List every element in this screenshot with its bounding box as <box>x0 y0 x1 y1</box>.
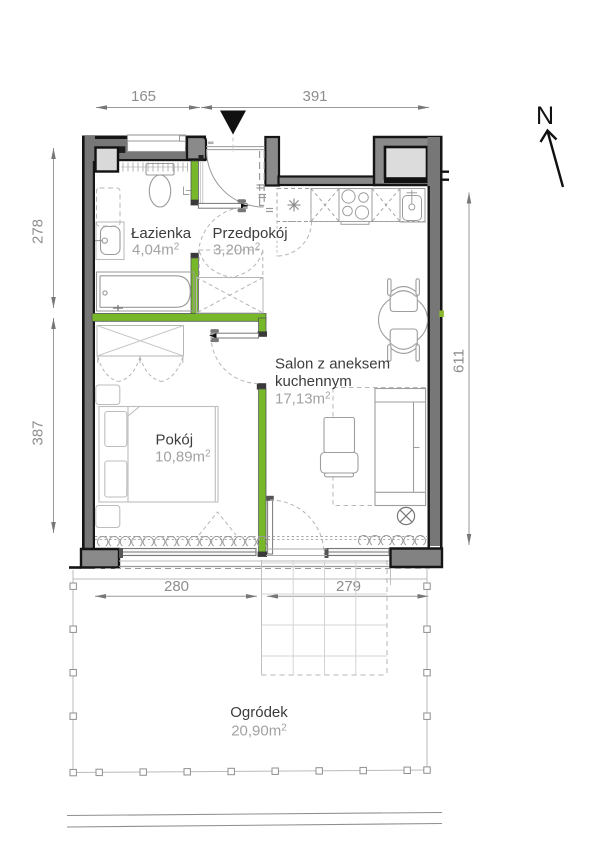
svg-text:391: 391 <box>302 88 327 105</box>
svg-text:3,20m2: 3,20m2 <box>213 242 261 259</box>
svg-text:N: N <box>536 102 554 130</box>
svg-text:278: 278 <box>30 219 47 244</box>
svg-text:Salon z aneksem: Salon z aneksem <box>275 356 390 373</box>
svg-text:Ogródek: Ogródek <box>230 704 288 721</box>
svg-text:280: 280 <box>164 578 189 595</box>
svg-text:Przedpokój: Przedpokój <box>213 225 288 242</box>
svg-text:17,13m2: 17,13m2 <box>275 391 331 408</box>
svg-text:611: 611 <box>451 349 468 373</box>
svg-text:20,90m2: 20,90m2 <box>231 723 287 740</box>
svg-text:165: 165 <box>131 88 156 105</box>
svg-text:Pokój: Pokój <box>156 432 194 449</box>
svg-text:4,04m2: 4,04m2 <box>132 242 180 259</box>
svg-text:387: 387 <box>30 420 47 445</box>
svg-text:kuchennym: kuchennym <box>275 373 352 390</box>
svg-text:Łazienka: Łazienka <box>131 225 192 242</box>
svg-text:279: 279 <box>336 578 361 595</box>
svg-text:10,89m2: 10,89m2 <box>155 449 211 466</box>
